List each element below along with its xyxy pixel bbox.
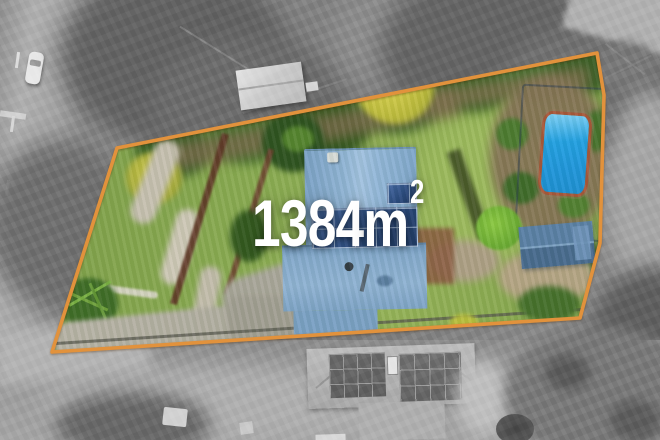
land-area-label: 1384m2 [252, 190, 424, 256]
aerial-property-photo: 1384m2 [0, 0, 660, 440]
area-value: 1384 [252, 186, 363, 260]
area-superscript: 2 [410, 173, 424, 210]
area-unit: m [363, 186, 408, 260]
